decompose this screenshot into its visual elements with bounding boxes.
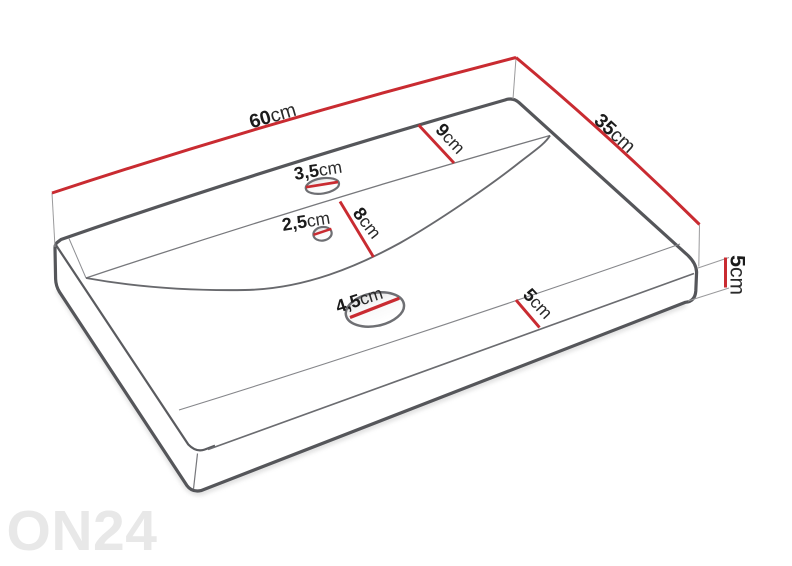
svg-text:5cm: 5cm [726,255,750,295]
svg-text:35cm: 35cm [590,109,640,157]
svg-text:60cm: 60cm [247,99,299,133]
svg-text:ON24: ON24 [7,499,158,563]
